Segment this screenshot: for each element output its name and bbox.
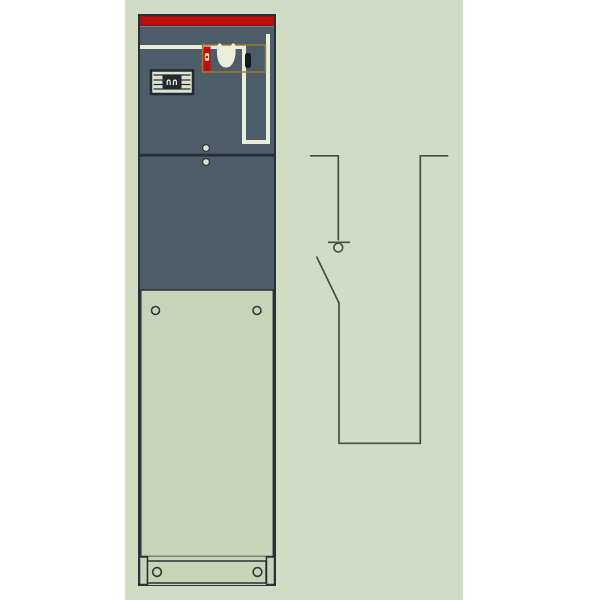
cable-compartment-door[interactable] [141, 290, 273, 557]
indicator-reading: ∩∩ [166, 77, 178, 88]
plinth-bolt-right [253, 568, 262, 577]
plinth-foot-right [267, 557, 275, 585]
plinth-foot-left [140, 557, 148, 585]
plinth-bolt-left [153, 568, 162, 577]
panel-screw-bottom [203, 159, 210, 166]
padlock-slot [245, 53, 251, 68]
compartment-divider [140, 154, 274, 157]
voltage-indicator: ∩∩ [151, 71, 193, 95]
base-plinth [140, 557, 275, 586]
door-screw-left [152, 307, 160, 315]
flag-symbol-dot [206, 56, 208, 58]
switchgear-module[interactable]: ∩∩ [139, 15, 275, 585]
panel-screw-top [203, 145, 210, 152]
top-accent-strip [140, 16, 274, 26]
door-screw-right [253, 307, 261, 315]
configurator-stage: ∩∩ [0, 0, 600, 600]
plinth-panel [148, 561, 267, 583]
